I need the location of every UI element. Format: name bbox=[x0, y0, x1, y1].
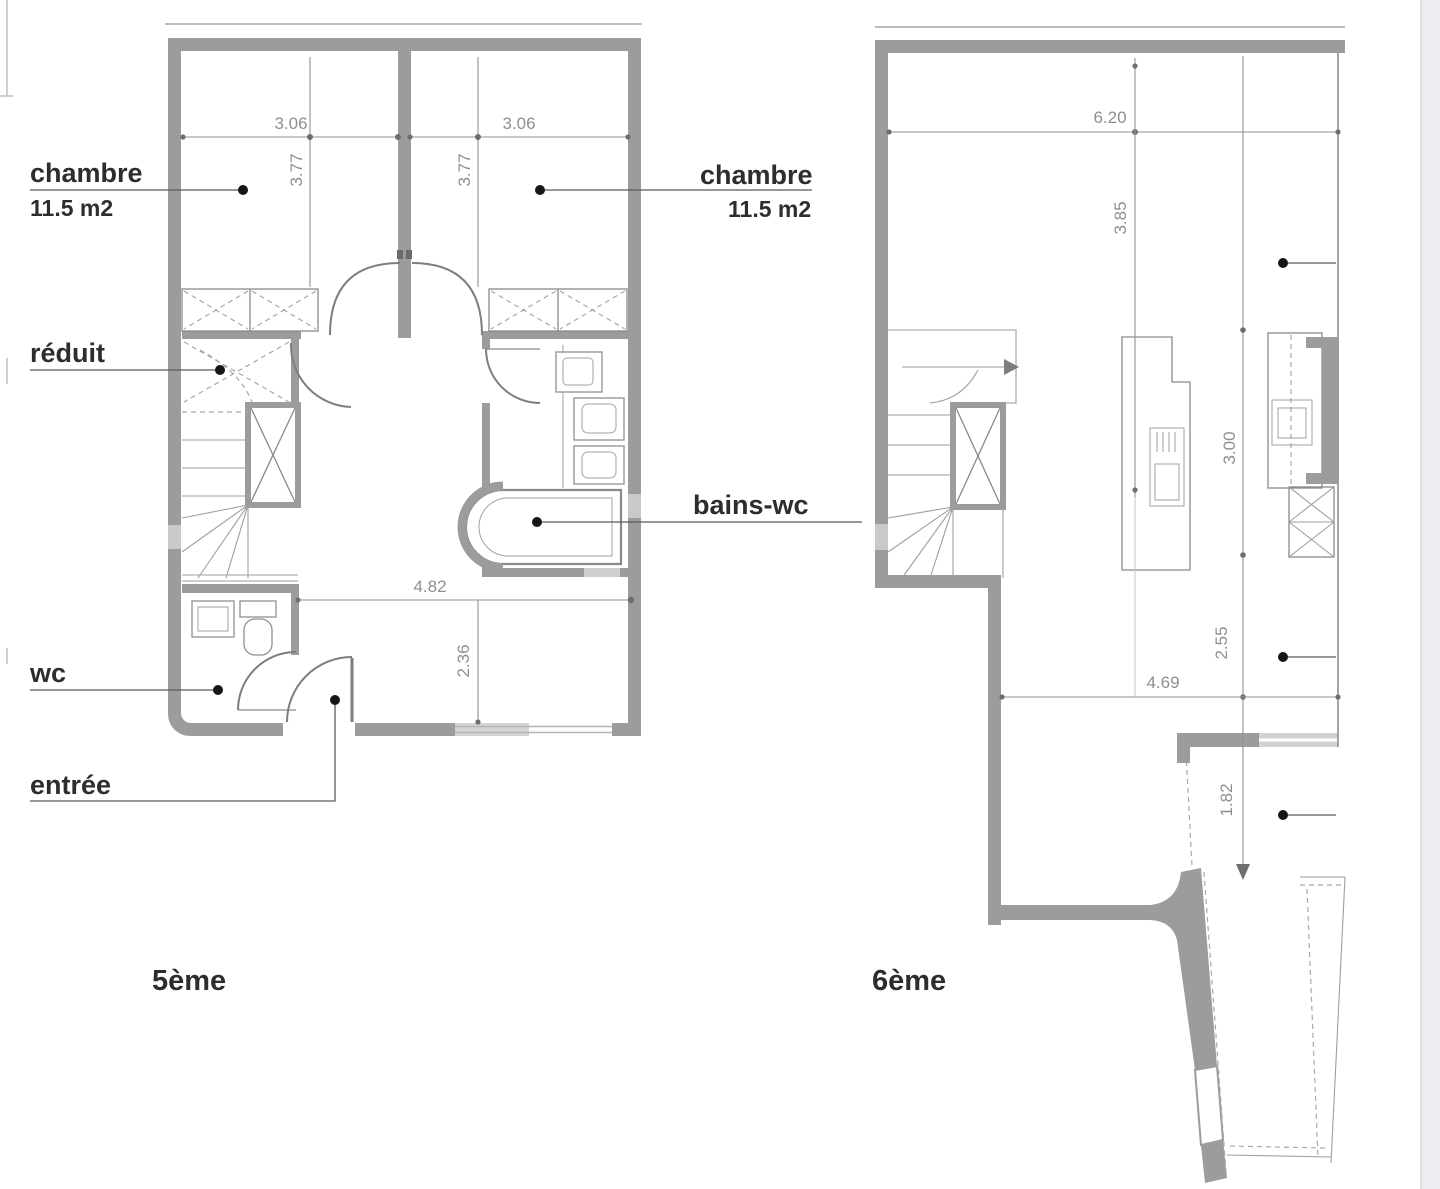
door-arc-chambre-left bbox=[330, 263, 400, 335]
bathtub-icon bbox=[466, 490, 621, 564]
room-label-bains-wc: bains-wc bbox=[693, 490, 809, 520]
wall-patch bbox=[875, 524, 888, 550]
room-label-reduit: réduit bbox=[30, 338, 105, 368]
wall-patch bbox=[168, 525, 181, 549]
closet-right bbox=[489, 289, 627, 331]
dim-terrace-width: 4.69 bbox=[1146, 673, 1179, 692]
dim-room-left-depth: 3.77 bbox=[287, 153, 306, 186]
door-arc-bathroom bbox=[486, 349, 540, 403]
entrance-opening bbox=[283, 720, 355, 738]
left-plan: 3.06 3.06 3.77 3.77 4.82 2.36 chambre 11… bbox=[29, 24, 862, 997]
page-right-edge bbox=[1421, 0, 1440, 1189]
bath-wall-top bbox=[482, 331, 628, 339]
floor-label-6eme: 6ème bbox=[872, 965, 946, 997]
floor-label-5eme: 5ème bbox=[152, 965, 226, 997]
door-hinge-mark bbox=[406, 250, 412, 259]
terrace-railing bbox=[1227, 877, 1345, 1163]
right-plan: 6.20 3.85 3.00 2.55 4.69 1.82 6ème bbox=[872, 27, 1345, 1183]
room-area-chambre-left: 11.5 m2 bbox=[30, 195, 113, 221]
dim-room-right-width: 3.06 bbox=[502, 114, 535, 133]
diagonal-wall bbox=[1150, 868, 1217, 1070]
kitchen-island bbox=[1122, 337, 1190, 570]
bath-window bbox=[584, 568, 620, 577]
kitchen-counter bbox=[1268, 333, 1339, 557]
dim-room-right-depth: 3.77 bbox=[455, 153, 474, 186]
stair-wall-bottom bbox=[182, 584, 299, 593]
floor-plan-drawing: 3.06 3.06 3.77 3.77 4.82 2.36 chambre 11… bbox=[0, 0, 1440, 1189]
left-wall bbox=[875, 40, 888, 587]
shaft-x-box bbox=[1289, 487, 1334, 557]
door-wc bbox=[238, 652, 296, 710]
door-entrance bbox=[287, 657, 352, 722]
right-window-segment bbox=[1259, 733, 1338, 747]
closet-left bbox=[182, 289, 318, 331]
wall-patch bbox=[628, 494, 641, 518]
closet-wall-left bbox=[182, 331, 301, 339]
bottom-window bbox=[455, 723, 612, 736]
room-label-chambre-right: chambre bbox=[700, 160, 813, 190]
inset-wall bbox=[988, 575, 1001, 925]
dim-room-left-width: 3.06 bbox=[274, 114, 307, 133]
room-label-entree: entrée bbox=[30, 770, 111, 800]
room-label-chambre-left: chambre bbox=[30, 158, 143, 188]
room-label-wc: wc bbox=[29, 658, 66, 688]
bath-wall-left-stub bbox=[482, 339, 490, 349]
dim-corridor-width: 4.82 bbox=[413, 577, 446, 596]
railing-dash-upper bbox=[1186, 752, 1192, 866]
staircase bbox=[182, 342, 298, 581]
page-edge-marks bbox=[0, 0, 13, 664]
dim-terrace-depth: 1.82 bbox=[1217, 783, 1236, 816]
staircase-upper bbox=[888, 330, 1019, 578]
door-arc-reduit bbox=[291, 343, 351, 407]
step-wall bbox=[875, 575, 1000, 588]
door-arc-chambre-right bbox=[412, 263, 482, 335]
floor-plan-page: 3.06 3.06 3.77 3.77 4.82 2.36 chambre 11… bbox=[0, 0, 1440, 1189]
top-wall bbox=[875, 40, 1345, 53]
diagonal-wall-end bbox=[1201, 1140, 1227, 1183]
right-wall-segment bbox=[1177, 733, 1259, 747]
dim-dining-depth: 2.55 bbox=[1212, 626, 1231, 659]
dim-kitchen-depth: 3.00 bbox=[1220, 431, 1239, 464]
dim-living-width: 6.20 bbox=[1093, 108, 1126, 127]
partition-wall bbox=[398, 38, 411, 338]
diagonal-window bbox=[1195, 1066, 1223, 1145]
right-wall-stub bbox=[1177, 747, 1190, 763]
bottom-wall bbox=[988, 905, 1160, 920]
wc-room bbox=[192, 601, 276, 655]
room-area-chambre-right: 11.5 m2 bbox=[728, 196, 811, 222]
door-hinge-mark bbox=[397, 250, 403, 259]
dim-living-depth: 3.85 bbox=[1111, 201, 1130, 234]
dim-corridor-depth: 2.36 bbox=[454, 644, 473, 677]
